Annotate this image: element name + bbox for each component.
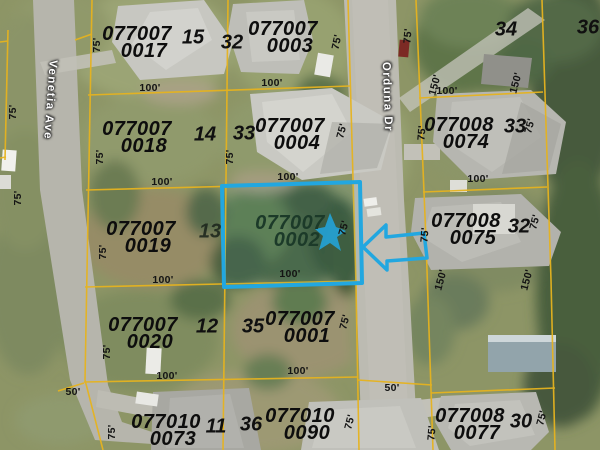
aerial-parcel-map[interactable]: 0770070017077007000307700700180770070004… xyxy=(0,0,600,450)
vehicle xyxy=(0,175,11,189)
shed-roof-blue-edge xyxy=(488,335,556,342)
map-graphics xyxy=(0,0,600,450)
building-roof xyxy=(312,406,416,448)
vehicle xyxy=(1,150,16,172)
building-roof xyxy=(246,10,300,62)
vehicle xyxy=(398,40,409,58)
vehicle xyxy=(145,348,161,375)
selected-parcel-outline[interactable] xyxy=(222,182,362,287)
building-roof xyxy=(481,54,532,88)
garage-roof xyxy=(473,204,515,234)
